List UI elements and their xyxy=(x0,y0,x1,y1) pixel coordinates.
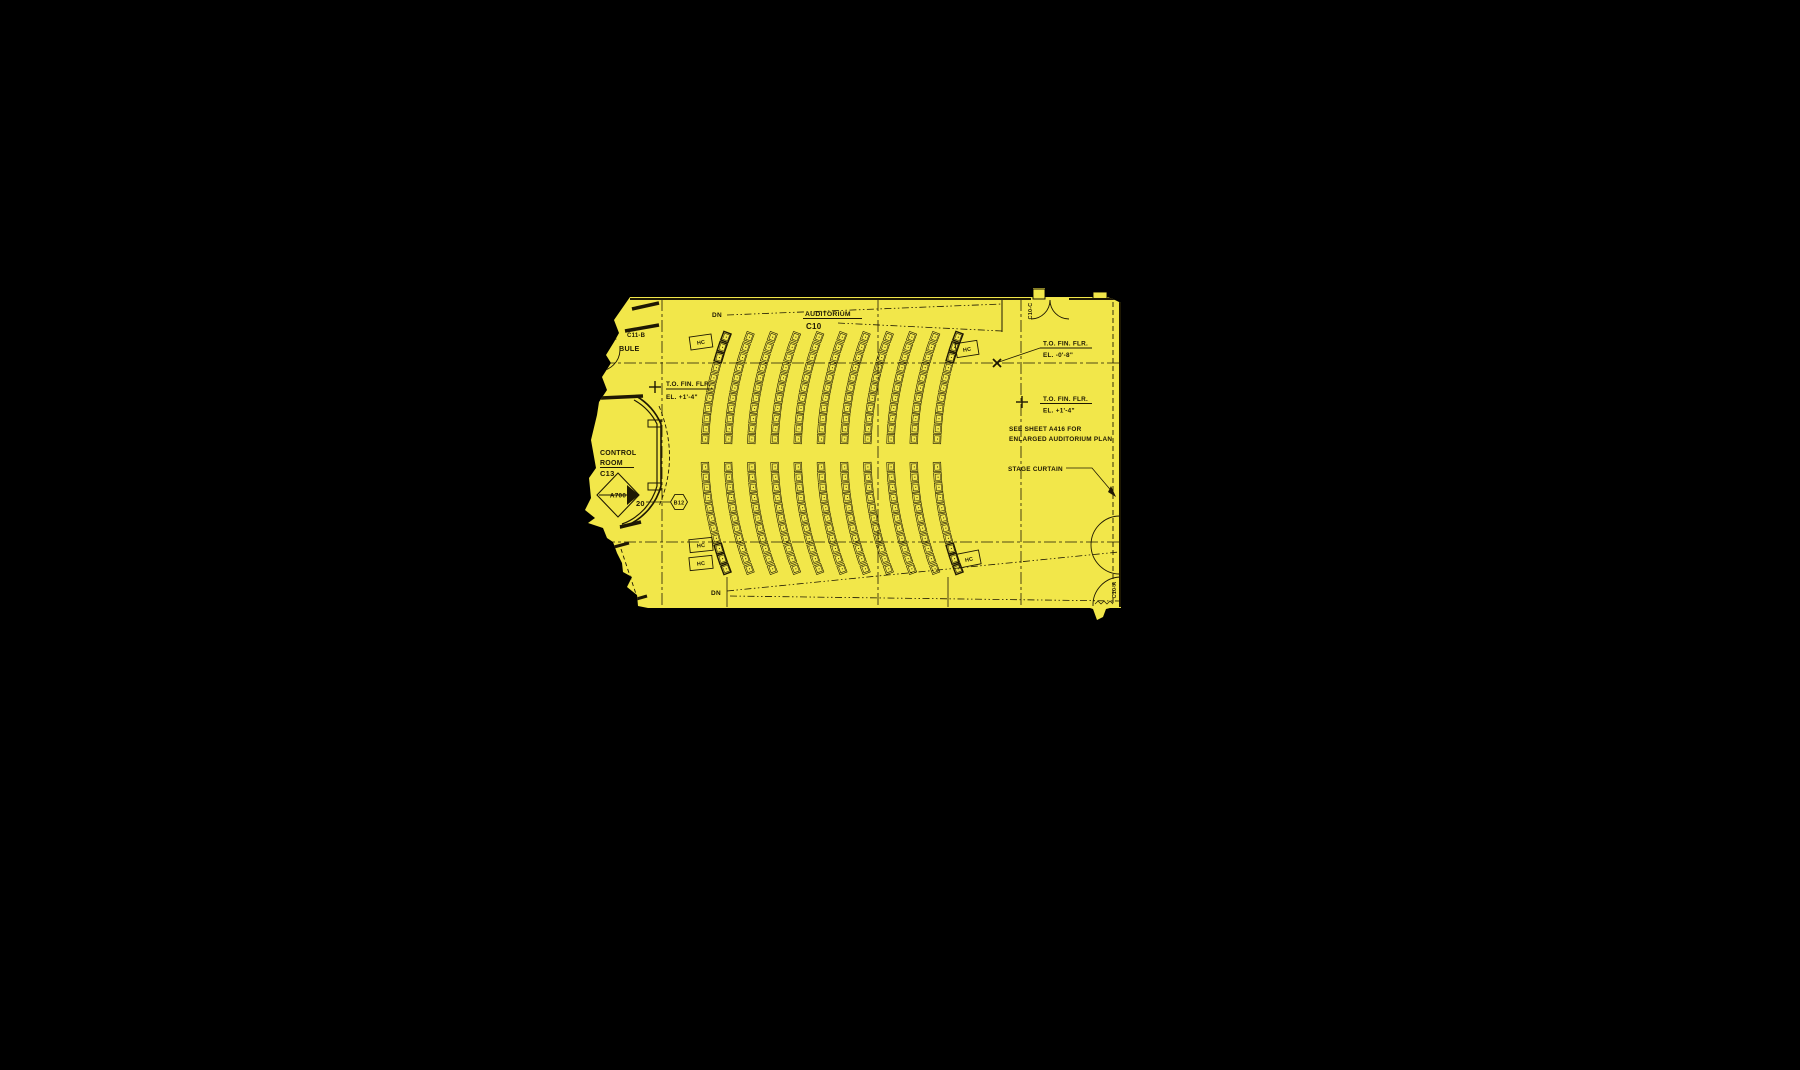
auditorium-room-name: AUDITORIUM xyxy=(805,311,851,318)
hc-label: HC xyxy=(963,347,972,354)
control-room-name-1: CONTROL xyxy=(600,450,637,457)
elev-left-line2: EL. +1'-4" xyxy=(666,394,698,401)
dn-bottom-label: DN xyxy=(711,590,721,597)
dn-top-label: DN xyxy=(712,312,722,319)
see-sheet-note-2: ENLARGED AUDITORIUM PLAN xyxy=(1009,436,1112,443)
elev-right2-line2: EL. +1'-4" xyxy=(1043,408,1075,415)
hc-label: HC xyxy=(697,561,706,568)
door-tag-c10a: C10-A xyxy=(1112,582,1118,599)
stage-curtain-label: STAGE CURTAIN xyxy=(1008,466,1063,473)
highlight-region xyxy=(585,288,1121,620)
control-room-number: C13 xyxy=(600,469,615,478)
hc-label: HC xyxy=(697,543,706,550)
keynote-b12: B12 xyxy=(674,501,685,507)
detail-callout-20: 20 xyxy=(636,499,645,508)
control-room-name-2: ROOM xyxy=(600,460,623,467)
elev-right2-line1: T.O. FIN. FLR. xyxy=(1043,396,1088,403)
see-sheet-note-1: SEE SHEET A416 FOR xyxy=(1009,426,1082,433)
vestibule-partial-label: BULE xyxy=(619,344,640,353)
floor-plan-svg: HCHCHCHCHCDNAUDITORIUMC10C11-BBULET.O. F… xyxy=(0,0,1800,1070)
detail-callout-a700: A700 xyxy=(610,493,626,500)
elev-right1-line2: EL. -0'-8" xyxy=(1043,352,1073,359)
door-tag-c10c: C10-C xyxy=(1028,303,1034,320)
screenshot-root: HCHCHCHCHCDNAUDITORIUMC10C11-BBULET.O. F… xyxy=(0,0,1800,1070)
elev-left-line1: T.O. FIN. FLR. xyxy=(666,381,711,388)
elev-right1-line1: T.O. FIN. FLR. xyxy=(1043,341,1088,348)
hc-label: HC xyxy=(697,340,706,347)
auditorium-room-number: C10 xyxy=(806,322,822,331)
room-number-c11b: C11-B xyxy=(627,333,646,339)
